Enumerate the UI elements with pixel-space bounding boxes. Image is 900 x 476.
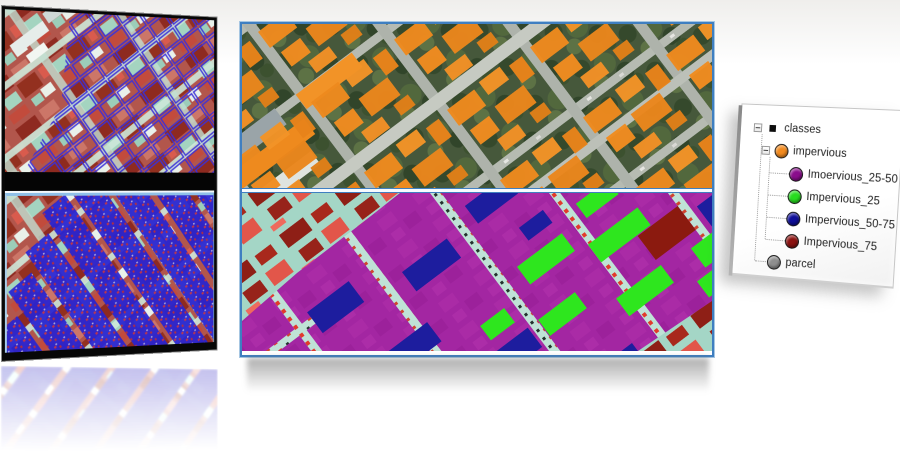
class-hierarchy-tree: classes impervious Imoervious_25-50 Impe… xyxy=(732,104,900,286)
tree-node-impervious[interactable]: impervious xyxy=(761,139,847,165)
classification-result-map xyxy=(242,193,712,351)
class-color-50-75-icon xyxy=(786,211,801,227)
tree-node-parcel[interactable]: parcel xyxy=(766,251,816,276)
scene: classes impervious Imoervious_25-50 Impe… xyxy=(0,0,900,476)
cir-fill-map-graphic xyxy=(7,195,213,353)
tree-connector-line xyxy=(768,195,787,197)
classes-node-icon xyxy=(769,124,776,131)
class-color-25-50-icon xyxy=(789,166,804,181)
tree-label[interactable]: Impervious_50-75 xyxy=(805,214,896,232)
orthophoto-map-graphic xyxy=(242,24,712,188)
tree-connector-line xyxy=(767,217,786,219)
class-color-parcel-icon xyxy=(767,254,782,270)
tree-connector-line xyxy=(765,157,771,239)
tree-node-classes[interactable]: classes xyxy=(753,116,821,141)
left-group-reflection xyxy=(1,366,218,466)
classification-map-graphic xyxy=(242,193,712,351)
tree-connector-line xyxy=(766,239,785,241)
center-group-shadow xyxy=(247,358,709,392)
left-group-separator xyxy=(5,172,214,193)
tree-label[interactable]: Impervious_25 xyxy=(806,191,880,208)
center-panel-group xyxy=(240,22,714,357)
tree-connector-line xyxy=(770,172,790,174)
class-color-25-icon xyxy=(787,189,802,204)
tree-label[interactable]: impervious xyxy=(793,145,847,160)
tree-label[interactable]: classes xyxy=(784,123,821,136)
orthophoto-impervious-overlay-map xyxy=(242,24,712,188)
class-color-impervious-icon xyxy=(774,143,789,158)
cir-image-parcel-outlines-map xyxy=(5,9,214,173)
legend-panel: classes impervious Imoervious_25-50 Impe… xyxy=(731,103,900,288)
cir-outline-map-graphic xyxy=(5,9,214,173)
collapse-expander-icon[interactable] xyxy=(754,123,763,132)
tree-label[interactable]: parcel xyxy=(785,257,816,271)
class-color-75-icon xyxy=(785,233,800,249)
tree-label[interactable]: Impervious_75 xyxy=(803,236,877,253)
left-panel-group xyxy=(1,5,218,362)
cir-image-parcel-fill-map xyxy=(5,192,214,352)
collapse-expander-icon[interactable] xyxy=(761,145,770,154)
tree-label[interactable]: Imoervious_25-50 xyxy=(807,169,898,186)
